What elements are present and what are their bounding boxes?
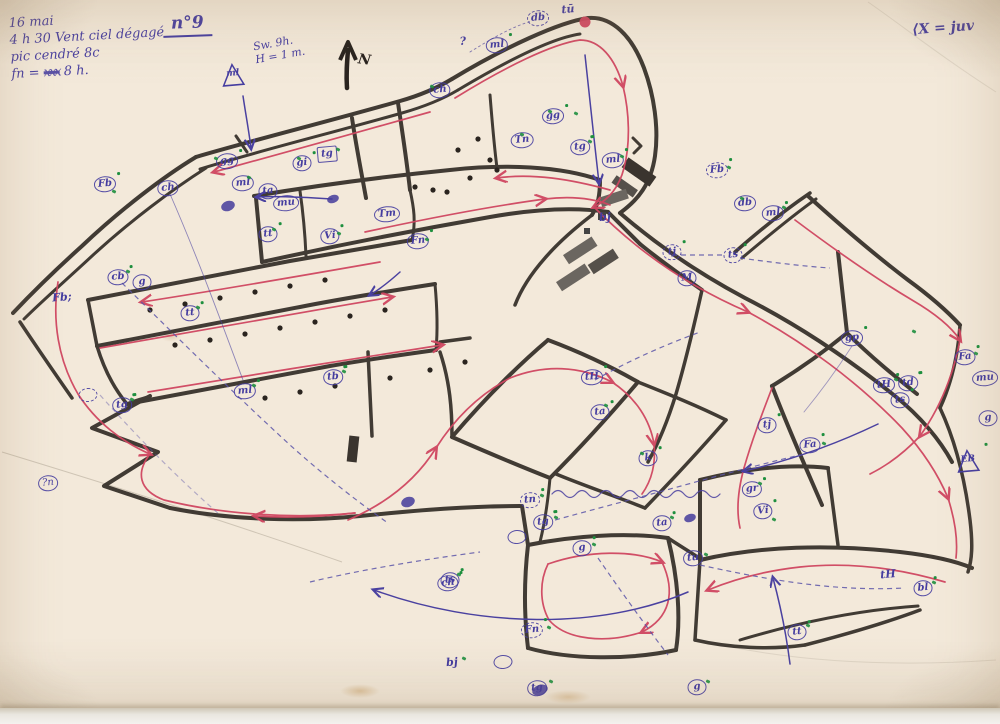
ink-scribble-blob [683,512,697,524]
territory-label: db [526,9,549,26]
green-tick-mark [540,493,545,497]
territory-label: ts [890,391,910,408]
territory-label: tH [580,368,603,385]
territory-label: gg [541,107,564,124]
territory-label: tu [682,549,703,566]
territory-label: tg [533,513,554,530]
territory-label: ml [217,61,249,91]
territory-label: bl [913,579,933,596]
territory-label: Tm [373,205,400,223]
green-tick-mark [112,189,117,193]
green-tick-mark [549,679,554,683]
territory-label: db [733,194,756,211]
green-tick-mark [574,111,579,115]
territory-label: ml [485,36,509,53]
green-tick-mark [806,623,811,627]
territory-label: Fa [799,436,821,453]
green-tick-mark [772,517,777,521]
territory-label: tb [323,368,344,385]
territory-label: ?n [37,474,58,491]
north-label: N [357,51,372,69]
territory-label: M [677,269,697,286]
territory-label [493,654,513,670]
territory-label: tn [519,491,540,508]
ink-scribble-blob [326,193,340,205]
field-note: 16 mai 4 h 30 Vent ciel dégagé pic cendr… [8,8,166,84]
territory-label: tū [558,2,578,18]
territory-label: g [572,539,592,556]
territory-label: bj [596,210,615,226]
territory-label: mu [971,369,998,387]
territory-label: Vi [320,227,341,244]
scanned-field-map: ?nFbchggmltamugitgttttcbgFb;tgmltbTmFnVi… [0,0,1000,724]
territory-label: Fb [705,161,728,178]
territory-label: gg [215,152,238,169]
green-tick-mark [704,552,709,556]
territory-label: Fb; [49,290,76,307]
territory-label: tg [317,145,338,162]
territory-label: ? [454,34,472,50]
territory-label: td [898,374,919,391]
territory-label: g [687,678,707,695]
territory-label: ts [723,246,743,263]
green-tick-mark [554,515,559,519]
territory-label: tH [877,567,900,583]
green-tick-mark [912,329,917,333]
territory-label: tj [757,416,777,433]
territory-label [78,387,98,403]
green-tick-mark [706,679,711,683]
territory-label: mu [272,194,299,212]
territory-label: ch [437,574,460,591]
territory-label: tH [872,376,895,393]
territory-label: ch [157,179,180,196]
territory-label: gp [840,329,863,346]
territory-label: Fa [954,348,976,365]
green-tick-mark [547,625,552,629]
ink-scribble-blob [220,199,237,213]
scanner-edge-strip [0,708,1000,724]
territory-label [507,529,527,545]
territory-label: g [978,409,998,426]
territory-label: g [132,273,152,290]
territory-label: Fn [520,621,544,638]
territory-label: Vi [753,502,774,519]
struck-text: xxx [43,64,60,80]
page-title: n°9 [163,12,213,38]
territory-label: gi [292,154,312,171]
territory-label: tj [662,243,682,260]
ink-scribble-blob [400,495,417,509]
territory-labels-layer: ?nFbchggmltamugitgttttcbgFb;tgmltbTmFnVi… [0,0,1000,724]
green-tick-mark [592,542,597,546]
territory-label: EB [952,447,984,477]
green-tick-mark [822,441,827,445]
territory-label: tt [787,623,807,640]
territory-label: bj [443,655,462,671]
green-tick-mark [462,656,467,660]
territory-label: ta [258,182,278,199]
green-tick-mark [932,580,937,584]
